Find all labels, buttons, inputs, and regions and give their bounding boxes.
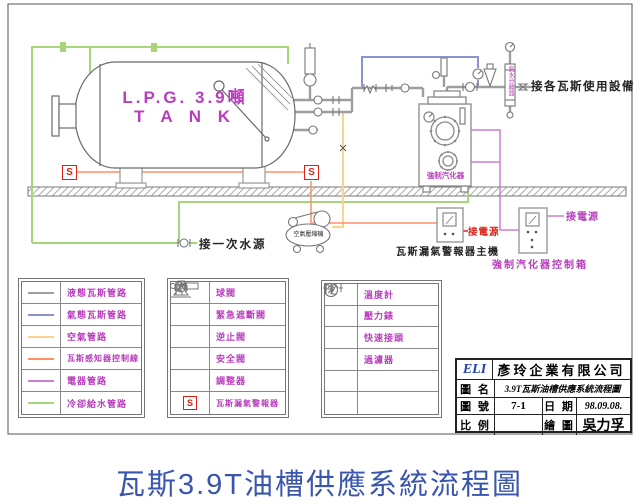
ball-valve-icon — [309, 126, 317, 134]
vaporizer-outlet-train — [463, 43, 527, 119]
legend-row: 液態瓦斯管路 — [22, 282, 141, 304]
safety-valve-icon — [304, 43, 316, 86]
tank-label-line1: L.P.G. 3.9噸 — [105, 83, 265, 108]
liquid-pipe — [294, 52, 531, 130]
legend-pipelines: 液態瓦斯管路 氣態瓦斯管路 空氣管路 瓦斯感知器控制線 電器管路 冷卻給水管路 — [18, 278, 145, 418]
vaporizer-control-unit — [519, 208, 547, 253]
liquid-pipe-swatch — [28, 292, 54, 294]
field-drawing-name: 圖 名 — [457, 380, 495, 397]
legend-row: 冷卻給水管路 — [22, 392, 141, 414]
air-pipe — [332, 112, 343, 227]
gas-sensor-right: S — [304, 165, 319, 180]
sensor-s-letter: S — [66, 167, 73, 178]
ball-valve-icon — [401, 84, 409, 92]
gas-phase-pipe — [362, 57, 478, 88]
drain-valve-icon — [507, 112, 513, 118]
compressor-label: 空氣壓縮機 — [288, 229, 329, 238]
vaporizer-label: 強制汽化器 — [423, 170, 468, 181]
sensor-s-letter: S — [308, 167, 315, 178]
company-name: 彥玲企業有限公司 — [493, 360, 630, 379]
manhole-flange — [52, 96, 59, 136]
wheel — [294, 246, 301, 253]
wheel — [317, 246, 324, 253]
ball-valve-icon — [314, 108, 322, 116]
field-drawing-no: 圖 號 — [457, 398, 495, 414]
legend-row: 氣態瓦斯管路 — [22, 304, 141, 326]
legend-instruments: 溫度計 壓力錶 快速接頭 過濾器 — [321, 280, 442, 418]
legend-row — [325, 392, 438, 414]
field-scale: 比 例 — [457, 415, 495, 435]
alarm-main-label: 瓦斯漏氣警報器主機 — [396, 243, 500, 258]
regulator-icon — [168, 279, 194, 299]
drawing-name: 3.9T瓦斯油槽供應系統流程圖 — [495, 380, 630, 397]
vaporizer-control-box-label: 強制汽化器控制箱 — [492, 256, 588, 271]
field-drawn-by: 繪 圖 — [543, 415, 577, 435]
power-label-red: 接電源 — [468, 224, 500, 238]
scale-value — [495, 415, 543, 435]
drawing-no: 7-1 — [495, 398, 543, 414]
legend-row — [325, 371, 438, 393]
legend-row: 安全閥 — [171, 348, 285, 370]
ball-valve-icon — [466, 83, 475, 92]
field-date: 日 期 — [543, 398, 577, 414]
air-pipe-swatch — [28, 336, 54, 338]
legend-row: 壓力錶 — [325, 306, 438, 328]
separator-label: 氣水分離器 — [506, 66, 514, 96]
title-block: ELI 彥玲企業有限公司 圖 名 3.9T瓦斯油槽供應系統流程圖 圖 號 7-1… — [455, 358, 632, 433]
drawing-caption: 瓦斯3.9T油槽供應系統流程圖 — [0, 461, 639, 503]
legend-row: 過濾器 — [325, 349, 438, 371]
sensor-line-swatch — [28, 358, 54, 360]
legend-valves: 球閥 緊急遮斷閥 逆止閥 安全閥 調整器 S 瓦斯漏 — [167, 278, 289, 418]
gauge-icon — [433, 72, 440, 79]
legend-row: 調整器 — [171, 370, 285, 392]
electric-line — [457, 130, 564, 230]
tank-label-line2: T A N K — [105, 107, 265, 127]
cooling-line-swatch — [28, 402, 54, 404]
water-source-label: 接一次水源 — [199, 236, 267, 252]
legend-row: 緊急遮斷閥 — [171, 304, 285, 326]
electric-line-swatch — [28, 380, 54, 382]
thermometer-icon — [441, 58, 447, 76]
alarm-main-unit — [437, 208, 463, 242]
legend-row: S 瓦斯漏氣警報器 — [171, 392, 285, 414]
legend-row: 電器管路 — [22, 370, 141, 392]
date-value: 98.09.08. — [577, 398, 630, 414]
gas-sensor-left: S — [62, 165, 77, 180]
ball-valve-icon — [314, 96, 322, 104]
legend-row: 瓦斯感知器控制線 — [22, 348, 141, 370]
drawn-by: 吳力孚 — [577, 415, 630, 435]
legend-row: 逆止閥 — [171, 326, 285, 348]
gas-equipment-label: 接各瓦斯使用設備 — [531, 78, 635, 94]
regulator-icon — [484, 69, 496, 86]
gas-leak-alarm-icon: S — [183, 396, 197, 410]
tank-manifold-valves — [309, 84, 409, 134]
legend-row: 空氣管路 — [22, 326, 141, 348]
filter-icon — [322, 281, 344, 295]
drawing-sheet: L.P.G. 3.9噸 T A N K S S 接一次水源 接各瓦斯使用設備 空… — [0, 0, 639, 504]
company-logo: ELI — [463, 362, 486, 378]
gas-pipe-swatch — [28, 314, 54, 316]
legend-row: 快速接頭 — [325, 327, 438, 349]
thermometer-icon — [460, 108, 465, 124]
power-label-magenta: 接電源 — [566, 208, 599, 223]
